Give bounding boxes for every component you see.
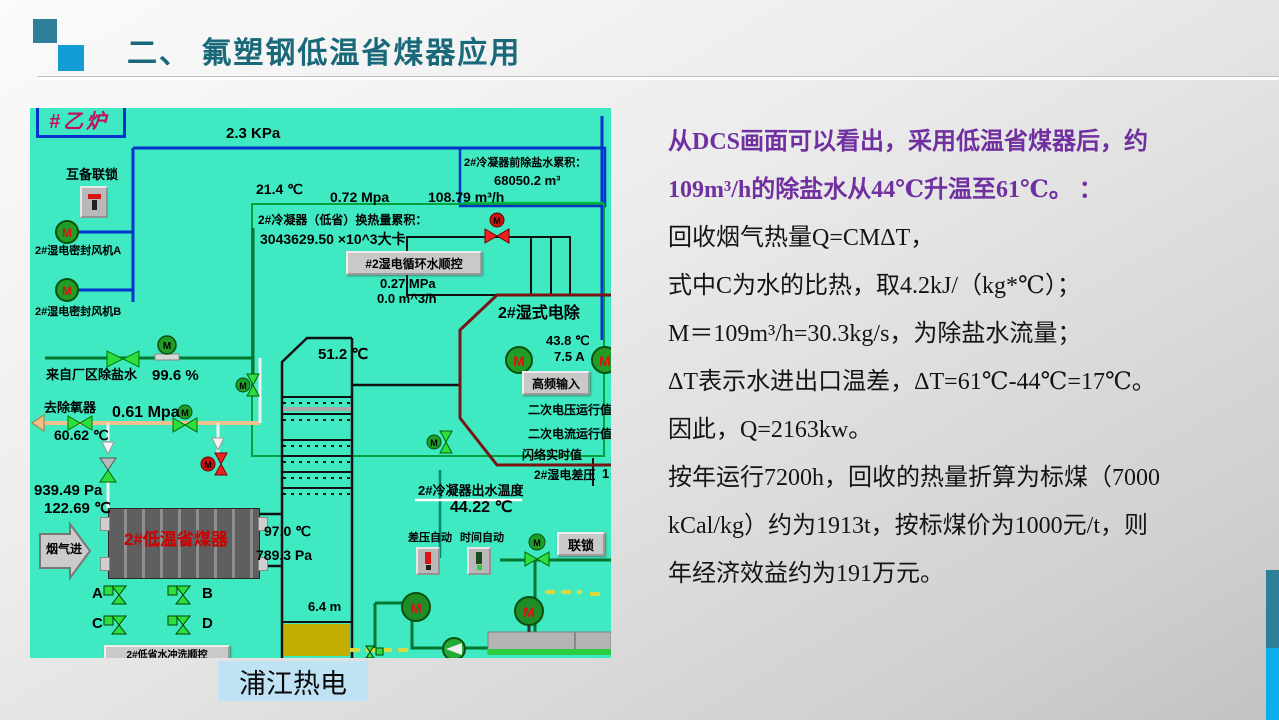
demin-total-value: 68050.2 m³ bbox=[494, 174, 561, 188]
press-061: 0.61 Mpa bbox=[112, 405, 180, 422]
valve-d-label: D bbox=[202, 616, 213, 632]
esp-title: 2#湿式电除 bbox=[498, 306, 580, 323]
right-text-line-2: 109m³/h的除盐水从44℃升温至61℃。 ： bbox=[668, 166, 1253, 214]
fan-a-label: 2#湿电密封风机A bbox=[35, 246, 121, 258]
right-text-line-1: 从DCS画面可以看出，采用低温省煤器后，约 bbox=[668, 118, 1253, 166]
press-072: 0.72 Mpa bbox=[330, 190, 389, 205]
dcs-screenshot: M M M M bbox=[30, 108, 611, 658]
right-text-line-7: 因此，Q=2163kw。 bbox=[668, 406, 1253, 454]
from-plant-label: 来自厂区除盐水 bbox=[46, 368, 137, 382]
decor-square-dark bbox=[33, 19, 57, 43]
right-text-line-10: 年经济效益约为191万元。 bbox=[668, 550, 1253, 598]
press-7893: 789.3 Pa bbox=[256, 548, 312, 563]
flow-10879: 108.79 m³/h bbox=[428, 190, 504, 205]
interlock-label: 互备联锁 bbox=[66, 168, 118, 182]
interlock-button[interactable]: 联锁 bbox=[557, 532, 605, 556]
esp-temp: 43.8 ℃ bbox=[546, 334, 590, 348]
sec-voltage-label: 二次电压运行值 bbox=[528, 404, 611, 417]
flow-00: 0.0 m^3/h bbox=[377, 292, 437, 306]
valve-b-label: B bbox=[202, 586, 213, 602]
tank-level: 6.4 m bbox=[308, 600, 341, 614]
page-title: 二、 氟塑钢低温省煤器应用 bbox=[127, 28, 521, 72]
temp-97: 97.0 ℃ bbox=[264, 524, 311, 539]
esp-current: 7.5 A bbox=[554, 350, 585, 364]
temp-512: 51.2 ℃ bbox=[318, 347, 368, 363]
title-separator bbox=[37, 76, 1279, 80]
right-text-line-5: M＝109m³/h=30.3kg/s，为除盐水流量； bbox=[668, 310, 1253, 358]
temp-12269: 122.69 ℃ bbox=[44, 501, 111, 517]
temp-6062: 60.62 ℃ bbox=[54, 428, 109, 443]
circ-water-seq-button[interactable]: #2湿电循环水顺控 bbox=[346, 251, 482, 275]
decor-square-light bbox=[58, 45, 84, 71]
flashover-label: 闪络实时值 bbox=[522, 449, 582, 462]
right-text-line-3: 回收烟气热量Q=CMΔT， bbox=[668, 214, 1253, 262]
time-auto-label: 时间自动 bbox=[460, 533, 504, 545]
right-text-line-8: 按年运行7200h，回收的热量折算为标煤（7000 bbox=[668, 454, 1253, 502]
right-text-line-9: kCal/kg）约为1913t，按标煤价为1000元/t，则 bbox=[668, 502, 1253, 550]
right-text: 从DCS画面可以看出，采用低温省煤器后，约109m³/h的除盐水从44℃升温至6… bbox=[668, 118, 1253, 598]
wash-seq-button[interactable]: 2#低省水冲洗顺控 bbox=[104, 645, 230, 658]
flue-in-label: 烟气进 bbox=[46, 543, 82, 556]
press-93949: 939.49 Pa bbox=[34, 483, 102, 499]
press-027: 0.27 MPa bbox=[380, 277, 436, 291]
sec-current-label: 二次电流运行值 bbox=[528, 428, 611, 441]
valve-a-label: A bbox=[92, 586, 103, 602]
dcs-labels: 2.3 KPa互备联锁2#湿电密封风机A2#湿电密封风机B21.4 ℃0.72 … bbox=[30, 108, 611, 658]
pressure-top: 2.3 KPa bbox=[226, 126, 280, 142]
temp-inlet: 21.4 ℃ bbox=[256, 182, 303, 197]
cond-out-label: 2#冷凝器出水温度 bbox=[418, 484, 523, 498]
right-text-line-4: 式中C为水的比热，取4.2kJ/（kg*℃）； bbox=[668, 262, 1253, 310]
slide: 二、 氟塑钢低温省煤器应用 bbox=[0, 0, 1279, 720]
heat-total-title: 2#冷凝器（低省）换热量累积： bbox=[258, 214, 427, 227]
economizer-name: 2#低温省煤器 bbox=[124, 531, 228, 549]
fan-b-label: 2#湿电密封风机B bbox=[35, 307, 121, 319]
esp-dp-label: 2#湿电差压 bbox=[534, 469, 595, 482]
heat-total-value: 3043629.50 ×10^3大卡 bbox=[260, 232, 406, 247]
hf-input-button[interactable]: 高频输入 bbox=[522, 371, 590, 395]
demin-total-title: 2#冷凝器前除盐水累积： bbox=[464, 158, 586, 170]
right-text-line-6: ΔT表示水进出口温差，ΔT=61℃-44℃=17℃。 bbox=[668, 358, 1253, 406]
valve-c-label: C bbox=[92, 616, 103, 632]
esp-dp-value: 1 bbox=[602, 467, 609, 481]
edge-bar-blue bbox=[1266, 648, 1279, 720]
edge-bar-teal bbox=[1266, 570, 1279, 648]
cond-out-value: 44.22 ℃ bbox=[450, 500, 512, 517]
plant-caption: 浦江热电 bbox=[218, 661, 368, 701]
dp-auto-label: 差压自动 bbox=[408, 533, 452, 545]
percent-996: 99.6 % bbox=[152, 368, 199, 384]
deaerator-label: 去除氧器 bbox=[44, 401, 96, 415]
